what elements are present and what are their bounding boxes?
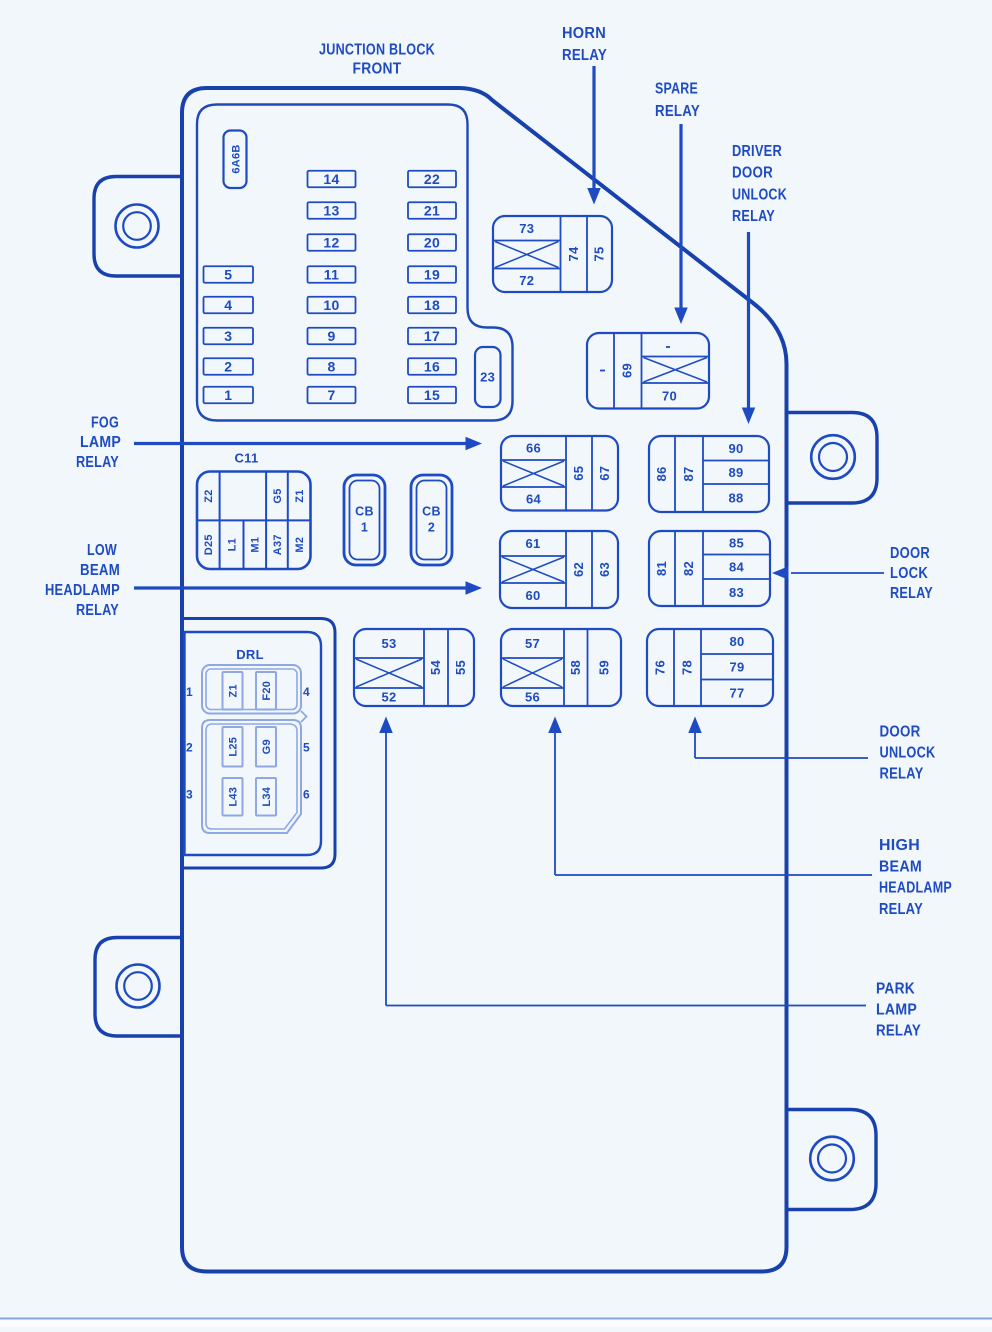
svg-text:59: 59 [596,660,611,675]
svg-text:D25: D25 [203,534,215,555]
svg-text:FOG: FOG [91,415,119,432]
svg-text:BEAM: BEAM [879,859,922,876]
svg-text:74: 74 [566,246,581,262]
svg-text:23: 23 [480,370,495,385]
svg-text:77: 77 [729,685,744,700]
svg-text:78: 78 [680,660,695,675]
svg-text:1: 1 [361,521,368,535]
svg-text:88: 88 [728,491,743,506]
svg-text:22: 22 [424,171,440,187]
svg-text:63: 63 [597,562,612,577]
svg-text:19: 19 [424,266,440,282]
svg-text:66: 66 [526,441,541,456]
svg-text:6A6B: 6A6B [231,144,243,173]
svg-text:RELAY: RELAY [890,585,933,602]
svg-text:LOCK: LOCK [890,565,928,582]
svg-text:10: 10 [323,297,339,313]
svg-text:18: 18 [424,297,440,313]
svg-text:11: 11 [324,266,339,282]
svg-text:65: 65 [571,466,586,481]
svg-text:12: 12 [323,234,339,250]
svg-text:Z1: Z1 [227,684,239,697]
svg-text:53: 53 [381,636,396,651]
svg-text:67: 67 [597,466,612,481]
svg-text:L1: L1 [226,538,238,551]
svg-text:14: 14 [323,171,339,187]
svg-text:HEADLAMP: HEADLAMP [879,880,952,897]
svg-text:Z2: Z2 [203,489,215,502]
svg-text:16: 16 [424,358,440,374]
svg-text:RELAY: RELAY [562,47,607,64]
svg-text:DOOR: DOOR [732,165,773,182]
svg-text:80: 80 [729,634,744,649]
svg-text:SPARE: SPARE [655,81,698,98]
svg-text:1: 1 [186,685,193,699]
svg-text:57: 57 [525,636,540,651]
svg-text:55: 55 [453,660,468,675]
svg-text:2: 2 [428,521,435,535]
svg-text:2: 2 [224,358,232,374]
svg-text:72: 72 [519,273,534,288]
svg-text:DOOR: DOOR [880,724,921,741]
svg-text:15: 15 [424,387,440,403]
svg-text:L25: L25 [227,737,239,757]
svg-text:17: 17 [424,328,440,344]
svg-text:RELAY: RELAY [655,103,700,120]
svg-text:BEAM: BEAM [80,562,120,579]
svg-text:13: 13 [323,202,339,218]
svg-text:58: 58 [568,660,583,675]
svg-text:HIGH: HIGH [879,837,920,854]
svg-text:F20: F20 [261,681,273,701]
svg-text:4: 4 [224,297,232,313]
svg-text:FRONT: FRONT [353,61,402,78]
svg-text:CB: CB [422,505,441,519]
svg-text:76: 76 [653,660,668,675]
svg-text:89: 89 [728,465,743,480]
svg-text:PARK: PARK [876,981,915,998]
svg-text:A37: A37 [272,534,284,555]
svg-text:C11: C11 [234,451,258,466]
svg-text:L43: L43 [227,787,239,807]
svg-text:5: 5 [224,266,232,282]
svg-text:6: 6 [303,788,310,802]
svg-text:HORN: HORN [562,25,606,42]
svg-text:3: 3 [224,328,232,344]
svg-text:LAMP: LAMP [80,434,121,451]
svg-text:2: 2 [186,741,193,755]
svg-text:4: 4 [303,685,310,699]
svg-text:LAMP: LAMP [876,1002,917,1019]
svg-text:62: 62 [571,562,586,577]
svg-text:5: 5 [303,741,310,755]
svg-text:79: 79 [729,659,744,674]
svg-text:UNLOCK: UNLOCK [880,745,936,762]
svg-text:3: 3 [186,788,193,802]
svg-text:G5: G5 [272,488,284,503]
svg-text:52: 52 [381,690,396,705]
svg-text:RELAY: RELAY [732,208,775,225]
svg-text:JUNCTION BLOCK: JUNCTION BLOCK [319,42,435,59]
svg-text:85: 85 [729,535,744,550]
svg-text:LOW: LOW [87,542,117,559]
svg-text:9: 9 [327,328,335,344]
svg-text:83: 83 [729,585,744,600]
svg-text:7: 7 [327,387,335,403]
svg-text:84: 84 [729,559,745,574]
svg-text:1: 1 [224,387,232,403]
svg-text:20: 20 [424,234,440,250]
svg-text:CB: CB [355,505,374,519]
svg-text:RELAY: RELAY [76,602,119,619]
svg-text:DRL: DRL [236,647,264,662]
svg-text:54: 54 [428,660,443,676]
svg-text:M1: M1 [250,537,262,553]
svg-text:87: 87 [681,466,696,481]
svg-text:DRIVER: DRIVER [732,143,782,160]
svg-text:L34: L34 [261,786,273,806]
svg-text:21: 21 [424,202,440,218]
svg-text:69: 69 [620,363,635,378]
svg-text:G9: G9 [261,739,273,754]
svg-text:8: 8 [327,358,335,374]
svg-text:73: 73 [519,221,534,236]
svg-text:RELAY: RELAY [879,901,923,918]
svg-text:60: 60 [525,588,540,603]
svg-text:82: 82 [681,561,696,576]
svg-text:56: 56 [525,690,540,705]
svg-text:HEADLAMP: HEADLAMP [45,582,120,599]
svg-text:RELAY: RELAY [880,766,924,783]
svg-text:M2: M2 [294,537,306,553]
svg-text:90: 90 [728,441,743,456]
svg-text:64: 64 [526,491,542,506]
svg-text:61: 61 [525,536,540,551]
svg-text:81: 81 [654,561,669,576]
svg-text:Z1: Z1 [294,489,306,502]
svg-text:75: 75 [592,246,607,261]
svg-text:RELAY: RELAY [76,454,119,471]
svg-text:RELAY: RELAY [876,1023,921,1040]
svg-text:UNLOCK: UNLOCK [732,187,787,204]
svg-text:DOOR: DOOR [890,545,930,562]
svg-text:86: 86 [654,466,669,481]
svg-text:70: 70 [662,389,677,404]
